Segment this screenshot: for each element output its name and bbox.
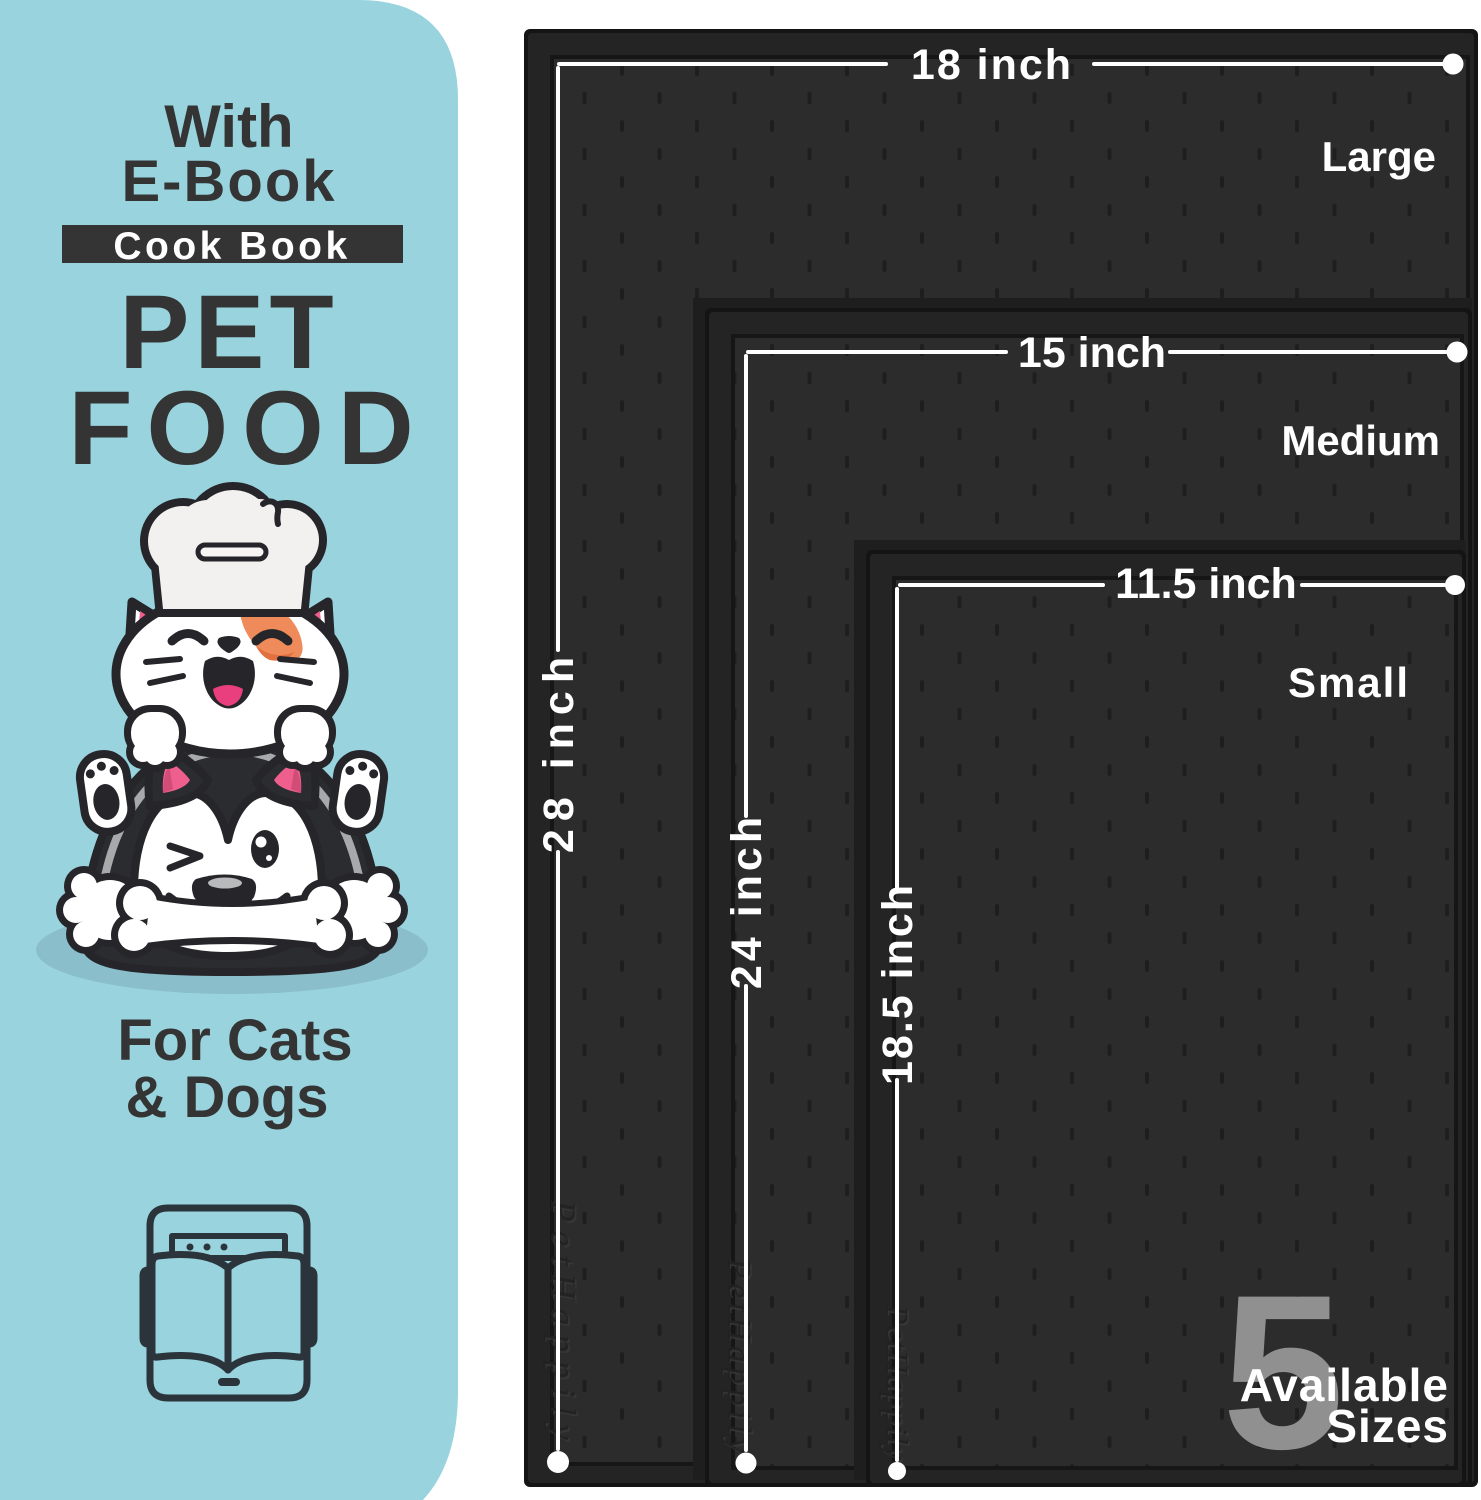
svg-text:& Dogs: & Dogs	[126, 1065, 329, 1130]
svg-text:11.5 inch: 11.5 inch	[1115, 560, 1297, 608]
svg-text:Large: Large	[1322, 133, 1436, 180]
svg-text:For Cats: For Cats	[117, 1008, 352, 1073]
svg-text:E-Book: E-Book	[122, 149, 337, 214]
svg-text:24 inch: 24 inch	[723, 813, 771, 989]
svg-text:18.5 inch: 18.5 inch	[874, 883, 922, 1085]
svg-text:PetHappily: PetHappily	[720, 1257, 757, 1454]
svg-text:Small: Small	[1288, 659, 1410, 706]
svg-text:Medium: Medium	[1281, 417, 1440, 464]
svg-text:FOOD: FOOD	[68, 370, 427, 487]
svg-text:Sizes: Sizes	[1326, 1400, 1449, 1452]
svg-text:18 inch: 18 inch	[911, 41, 1073, 89]
svg-text:15 inch: 15 inch	[1018, 329, 1166, 377]
svg-text:28 inch: 28 inch	[535, 649, 583, 853]
svg-text:Cook Book: Cook Book	[113, 225, 350, 268]
